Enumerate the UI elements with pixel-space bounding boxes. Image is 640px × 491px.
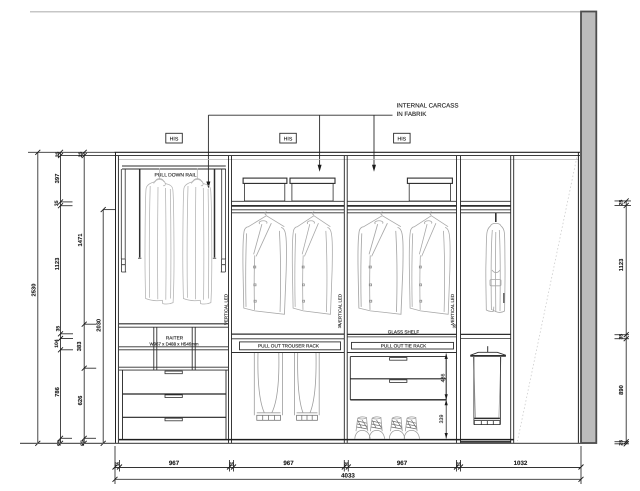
svg-text:1123: 1123 [618,258,625,271]
svg-text:INTERNAL CARCASS: INTERNAL CARCASS [397,103,459,110]
svg-text:RAITER: RAITER [166,336,184,341]
svg-text:486: 486 [441,374,447,383]
svg-text:1471: 1471 [78,233,84,247]
svg-text:2530: 2530 [31,284,38,297]
svg-text:35: 35 [619,334,625,340]
svg-text:25: 25 [114,461,119,466]
svg-text:VERTICAL LED: VERTICAL LED [223,294,228,325]
svg-text:1032: 1032 [514,460,528,467]
svg-text:GLASS SHELF: GLASS SHELF [388,329,420,334]
svg-text:383: 383 [76,341,83,351]
svg-text:VERTICAL LED: VERTICAL LED [450,294,455,325]
svg-text:PULL OUT TIE RACK: PULL OUT TIE RACK [381,344,427,349]
svg-text:35: 35 [338,324,342,328]
svg-text:25: 25 [78,152,84,158]
svg-text:25: 25 [229,461,234,466]
svg-text:PULL OUT TROUSER RACK: PULL OUT TROUSER RACK [258,344,320,349]
svg-text:397: 397 [54,174,61,184]
svg-text:967: 967 [397,460,408,467]
svg-text:339: 339 [439,415,445,424]
svg-text:2030: 2030 [96,319,103,332]
svg-text:35: 35 [56,326,62,332]
svg-text:HIS: HIS [397,137,406,143]
svg-text:IN FABRIK: IN FABRIK [397,111,428,118]
svg-text:PULL DOWN RAIL: PULL DOWN RAIL [154,173,196,179]
svg-text:VERTICAL LED: VERTICAL LED [338,294,343,325]
svg-text:25: 25 [55,152,61,158]
svg-text:25: 25 [344,461,349,466]
svg-text:25: 25 [456,461,461,466]
svg-text:104: 104 [54,339,60,348]
svg-text:4033: 4033 [341,473,355,480]
svg-text:626: 626 [77,395,84,405]
svg-text:W967 x D488 x H546mm: W967 x D488 x H546mm [149,342,198,347]
svg-text:35: 35 [54,200,60,206]
svg-text:967: 967 [169,460,180,467]
svg-text:25: 25 [619,440,625,446]
svg-text:967: 967 [283,460,294,467]
svg-text:1123: 1123 [54,257,61,270]
svg-text:890: 890 [618,385,625,395]
svg-text:786: 786 [54,386,61,396]
svg-text:25: 25 [619,200,625,206]
svg-text:HIS: HIS [284,137,293,143]
svg-text:HIS: HIS [170,137,179,143]
svg-text:35: 35 [453,324,457,328]
